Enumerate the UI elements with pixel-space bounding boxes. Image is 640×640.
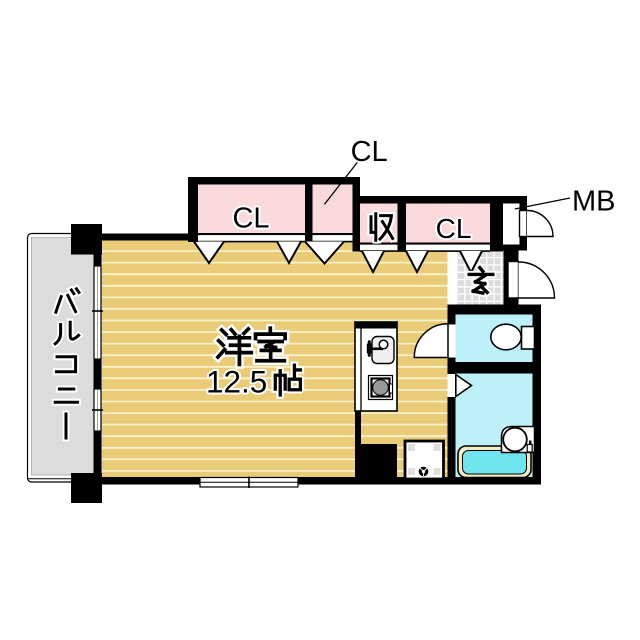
svg-text:CL: CL <box>351 136 388 168</box>
svg-text:12.5: 12.5 <box>206 364 267 400</box>
svg-text:CL: CL <box>232 203 269 235</box>
svg-text:CL: CL <box>436 213 472 244</box>
svg-text:MB: MB <box>572 186 616 218</box>
